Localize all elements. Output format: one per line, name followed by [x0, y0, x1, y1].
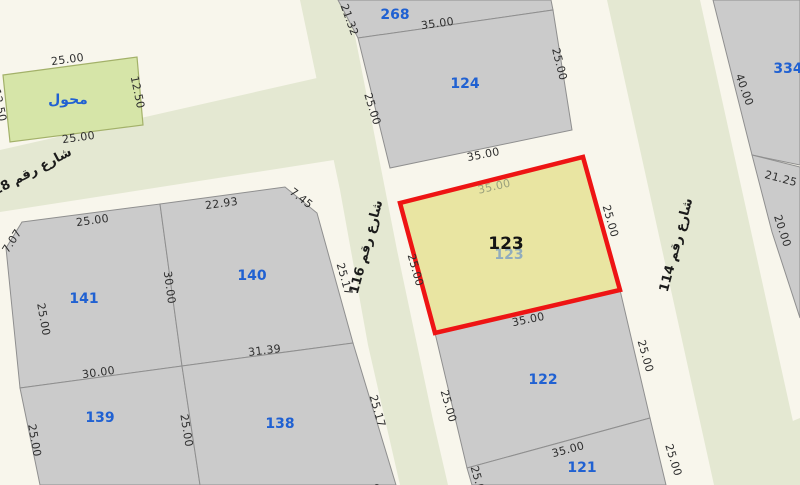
cadastral-parcel-map: 25.00 12.50 25.00 12.50 25.00 7.07 25.00… — [0, 0, 800, 485]
parcel-transformer-label: محول — [48, 92, 88, 108]
parcel-334-number: 334 — [773, 61, 800, 77]
parcel-138-number: 138 — [265, 416, 294, 432]
parcel-141-number: 141 — [69, 291, 98, 307]
parcel-124-number: 124 — [450, 76, 479, 92]
parcel-123-number: 123 — [488, 234, 524, 254]
parcel-139-number: 139 — [85, 410, 114, 426]
parcel-140-number: 140 — [237, 268, 266, 284]
parcel-121-number: 121 — [567, 460, 596, 476]
parcel-122-number: 122 — [528, 372, 557, 388]
map-canvas: 25.00 12.50 25.00 12.50 25.00 7.07 25.00… — [0, 0, 800, 485]
parcel-268-number: 268 — [380, 7, 409, 23]
